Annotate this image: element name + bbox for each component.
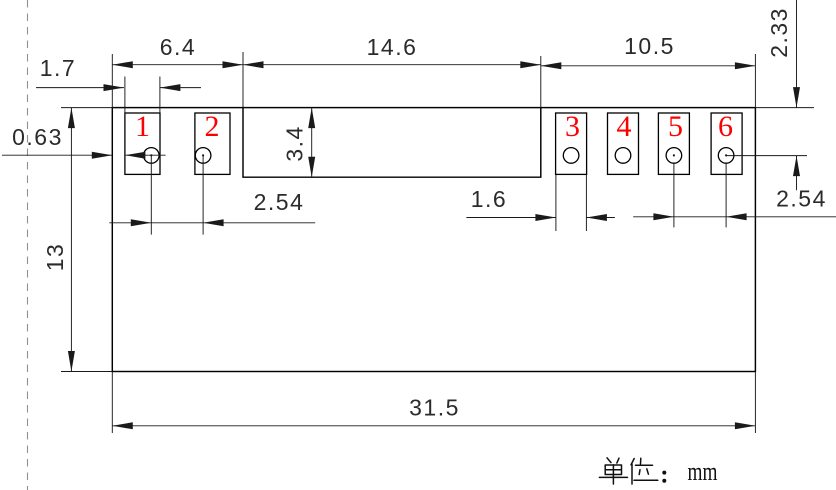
- svg-text:0.63: 0.63: [12, 124, 63, 150]
- svg-text:1: 1: [135, 110, 150, 143]
- svg-text:2.54: 2.54: [776, 185, 827, 211]
- svg-text:13: 13: [42, 243, 68, 272]
- svg-text:2.54: 2.54: [254, 189, 305, 215]
- svg-text:6: 6: [718, 110, 733, 143]
- svg-text:1.7: 1.7: [40, 55, 76, 81]
- svg-text:2.33: 2.33: [766, 7, 792, 58]
- svg-text:3: 3: [565, 110, 580, 143]
- svg-text:5: 5: [668, 110, 683, 143]
- svg-text:mm: mm: [688, 457, 718, 485]
- svg-text:14.6: 14.6: [367, 34, 418, 60]
- svg-text:31.5: 31.5: [409, 395, 460, 421]
- svg-text:1.6: 1.6: [471, 186, 507, 212]
- svg-text:10.5: 10.5: [624, 33, 675, 59]
- svg-text:3.4: 3.4: [282, 125, 308, 161]
- svg-text:4: 4: [617, 110, 632, 143]
- svg-text:2: 2: [205, 110, 220, 143]
- svg-text:6.4: 6.4: [160, 34, 196, 60]
